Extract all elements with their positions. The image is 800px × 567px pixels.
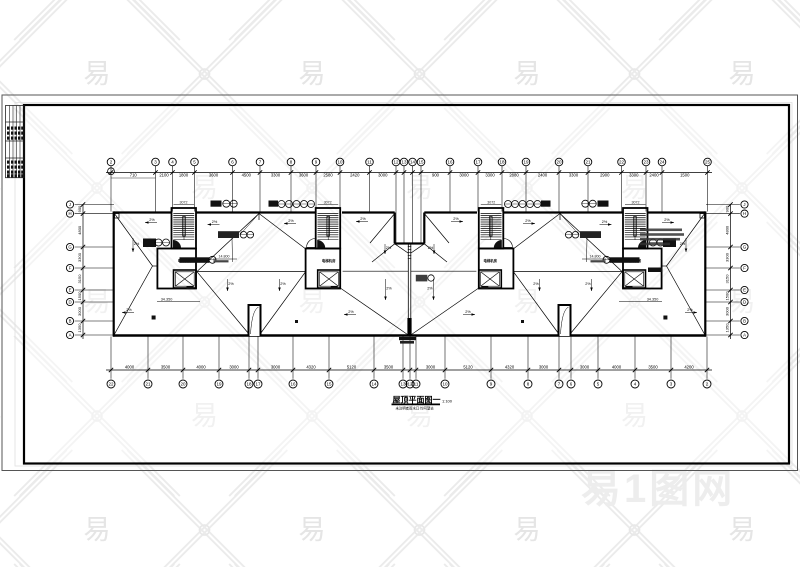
svg-text:23: 23 — [643, 160, 649, 165]
svg-text:未注明者雨水口 均可望去: 未注明者雨水口 均可望去 — [396, 406, 435, 411]
svg-text:3300: 3300 — [629, 173, 639, 178]
svg-text:15: 15 — [418, 160, 424, 165]
svg-text:H: H — [68, 211, 71, 216]
svg-text:易: 易 — [514, 515, 541, 545]
svg-text:34.350: 34.350 — [161, 297, 173, 301]
svg-text:F: F — [743, 266, 746, 271]
svg-text:3072: 3072 — [487, 201, 495, 205]
svg-text:3072: 3072 — [632, 201, 640, 205]
svg-text:2%: 2% — [602, 220, 608, 224]
svg-text:3000: 3000 — [271, 365, 281, 370]
svg-text:3300: 3300 — [485, 173, 495, 178]
svg-text:F: F — [69, 266, 72, 271]
svg-text:3000: 3000 — [229, 365, 239, 370]
svg-text:3300: 3300 — [271, 173, 281, 178]
svg-text:易: 易 — [299, 59, 326, 89]
svg-text:2%: 2% — [212, 220, 218, 224]
svg-text:2%: 2% — [386, 287, 392, 291]
svg-text:3072: 3072 — [180, 201, 188, 205]
svg-text:1500: 1500 — [725, 291, 730, 301]
svg-text:17: 17 — [475, 160, 481, 165]
svg-text:易: 易 — [406, 401, 433, 431]
svg-text:3300: 3300 — [725, 252, 730, 262]
svg-text:2900: 2900 — [600, 173, 610, 178]
svg-text:14.800: 14.800 — [219, 255, 230, 259]
svg-text:易: 易 — [84, 59, 111, 89]
svg-text:H: H — [743, 211, 746, 216]
svg-text:4000: 4000 — [612, 365, 622, 370]
svg-text:4200: 4200 — [684, 365, 694, 370]
svg-text:屋顶平面图一: 屋顶平面图一 — [393, 395, 441, 405]
svg-text:2%: 2% — [465, 310, 471, 314]
svg-text:电梯机房: 电梯机房 — [484, 258, 498, 263]
svg-text:4800: 4800 — [725, 225, 730, 235]
svg-text:2%: 2% — [664, 218, 670, 222]
svg-text:11: 11 — [414, 382, 419, 387]
svg-text:易: 易 — [84, 515, 111, 545]
svg-text:2400: 2400 — [649, 173, 659, 178]
svg-text:3150: 3150 — [77, 274, 82, 284]
svg-text:13: 13 — [401, 160, 407, 165]
svg-text:2%: 2% — [228, 282, 234, 286]
svg-text:13: 13 — [400, 382, 406, 387]
svg-text:3000: 3000 — [580, 365, 590, 370]
svg-text:易: 易 — [406, 173, 433, 203]
svg-text:B: B — [743, 319, 746, 324]
svg-text:易1图网: 易1图网 — [581, 467, 735, 511]
svg-text:2%: 2% — [280, 282, 286, 286]
svg-text:3150: 3150 — [725, 274, 730, 284]
svg-text:3500: 3500 — [161, 365, 171, 370]
svg-text:2%: 2% — [149, 218, 155, 222]
svg-text:电梯机房: 电梯机房 — [322, 258, 336, 263]
svg-text:3600: 3600 — [209, 173, 219, 178]
svg-text:14.800: 14.800 — [590, 255, 601, 259]
svg-text:17: 17 — [255, 382, 261, 387]
svg-text:E: E — [69, 288, 72, 293]
svg-text:2%: 2% — [585, 282, 591, 286]
svg-text:11: 11 — [367, 160, 372, 165]
svg-text:3500: 3500 — [384, 365, 394, 370]
svg-text:J: J — [743, 202, 745, 207]
svg-text:3000: 3000 — [378, 173, 388, 178]
svg-text:2%: 2% — [386, 246, 392, 250]
svg-text:710: 710 — [130, 173, 138, 178]
svg-text:4000: 4000 — [125, 365, 135, 370]
svg-text:D: D — [68, 300, 71, 305]
svg-text:22: 22 — [619, 160, 625, 165]
svg-text:A: A — [69, 333, 72, 338]
svg-text:24: 24 — [659, 160, 665, 165]
svg-text:18: 18 — [499, 160, 505, 165]
svg-text:12: 12 — [393, 160, 399, 165]
svg-text:3600: 3600 — [299, 173, 309, 178]
svg-text:19: 19 — [523, 160, 529, 165]
svg-text:3072: 3072 — [324, 201, 332, 205]
svg-text:2%: 2% — [427, 287, 433, 291]
svg-text:21: 21 — [145, 382, 151, 387]
svg-text:2%: 2% — [428, 246, 434, 250]
svg-text:3500: 3500 — [648, 365, 658, 370]
svg-text:易: 易 — [729, 59, 756, 89]
svg-text:A: A — [743, 333, 746, 338]
svg-text:1350: 1350 — [77, 323, 82, 333]
svg-text:2580: 2580 — [323, 173, 333, 178]
svg-text:18: 18 — [246, 382, 252, 387]
svg-text:2%: 2% — [348, 310, 354, 314]
svg-text:16: 16 — [447, 160, 453, 165]
svg-text:1500: 1500 — [680, 173, 690, 178]
svg-text:D: D — [743, 300, 746, 305]
svg-text:14: 14 — [371, 382, 377, 387]
svg-text:15: 15 — [326, 382, 332, 387]
svg-text:2%: 2% — [288, 219, 294, 223]
svg-text:4320: 4320 — [505, 365, 515, 370]
svg-text:10: 10 — [442, 382, 448, 387]
svg-text:14: 14 — [410, 160, 416, 165]
svg-text:3000: 3000 — [539, 365, 549, 370]
svg-text:2%: 2% — [680, 242, 686, 246]
svg-text:易: 易 — [729, 515, 756, 545]
svg-text:16: 16 — [290, 382, 296, 387]
svg-text:4800: 4800 — [77, 225, 82, 235]
svg-text:34.350: 34.350 — [647, 297, 659, 301]
svg-text:3000: 3000 — [426, 365, 436, 370]
svg-text:易: 易 — [621, 401, 648, 431]
svg-text:易: 易 — [299, 287, 326, 317]
svg-text:900: 900 — [725, 205, 730, 212]
svg-text:3000: 3000 — [725, 306, 730, 316]
svg-text:1500: 1500 — [77, 291, 82, 301]
svg-text:1800: 1800 — [179, 173, 189, 178]
svg-text:易: 易 — [514, 59, 541, 89]
svg-text:4320: 4320 — [306, 365, 316, 370]
svg-text:2400: 2400 — [538, 173, 548, 178]
svg-text:J: J — [69, 202, 71, 207]
svg-text:4500: 4500 — [242, 173, 252, 178]
svg-text:2%: 2% — [134, 242, 140, 246]
svg-text:2%: 2% — [525, 219, 531, 223]
svg-text:E: E — [743, 288, 746, 293]
svg-text:4000: 4000 — [196, 365, 206, 370]
svg-text:2880: 2880 — [509, 173, 519, 178]
svg-text:25: 25 — [705, 160, 711, 165]
svg-text:2420: 2420 — [350, 173, 360, 178]
svg-text:21: 21 — [585, 160, 591, 165]
svg-text:2100: 2100 — [159, 173, 169, 178]
svg-text:易: 易 — [191, 401, 218, 431]
svg-text:2%: 2% — [360, 217, 366, 221]
svg-text:10: 10 — [337, 160, 343, 165]
svg-text:5120: 5120 — [463, 365, 473, 370]
svg-text:3300: 3300 — [77, 252, 82, 262]
svg-text:20: 20 — [556, 160, 562, 165]
svg-text:B: B — [69, 319, 72, 324]
svg-text:20: 20 — [180, 382, 186, 387]
svg-text:900: 900 — [432, 173, 440, 178]
svg-text:1:100: 1:100 — [442, 399, 453, 404]
svg-text:900: 900 — [77, 205, 82, 212]
svg-text:易: 易 — [299, 515, 326, 545]
svg-text:3000: 3000 — [77, 306, 82, 316]
svg-text:易: 易 — [514, 287, 541, 317]
svg-text:2%: 2% — [687, 308, 693, 312]
svg-text:2%: 2% — [453, 217, 459, 221]
svg-text:3000: 3000 — [459, 173, 469, 178]
svg-text:22: 22 — [108, 382, 114, 387]
svg-text:3300: 3300 — [569, 173, 579, 178]
svg-text:2%: 2% — [533, 282, 539, 286]
svg-text:2%: 2% — [126, 308, 132, 312]
svg-text:1350: 1350 — [725, 323, 730, 333]
svg-text:19: 19 — [216, 382, 222, 387]
svg-text:5120: 5120 — [347, 365, 357, 370]
